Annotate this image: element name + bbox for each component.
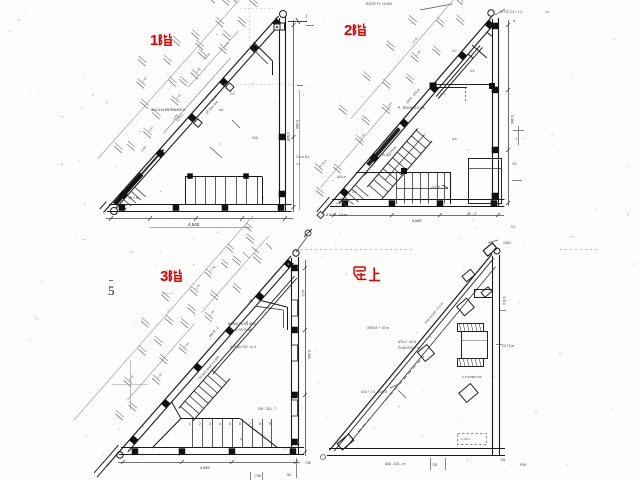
- svg-text:9: 9: [269, 422, 271, 426]
- svg-text:4,561: 4,561: [503, 241, 511, 245]
- svg-text:- 1: - 1: [129, 250, 133, 254]
- svg-text:W=1.0 m ENTRANCE K.: W=1.0 m ENTRANCE K.: [151, 108, 186, 112]
- svg-text:2.0: 2.0: [230, 92, 235, 96]
- svg-text:5: 5: [229, 422, 231, 426]
- svg-text:A 5.74 - 0.4 m: A 5.74 - 0.4 m: [326, 213, 347, 217]
- svg-text:4.5: 4.5: [470, 69, 475, 73]
- svg-text:6.0: 6.0: [452, 49, 457, 53]
- svg-text:745: 745: [305, 461, 311, 465]
- svg-text:d: d: [246, 320, 248, 324]
- svg-text:PLAN ROOF m: PLAN ROOF m: [398, 346, 420, 350]
- svg-text:C-TOWER 739: C-TOWER 739: [462, 375, 482, 379]
- svg-text:3.6: 3.6: [352, 190, 357, 194]
- svg-text:8: 8: [259, 422, 261, 426]
- svg-text:A4-1: A4-1: [301, 290, 305, 297]
- svg-text:W 0 2: W 0 2: [382, 153, 391, 157]
- svg-text:3.5: 3.5: [512, 162, 517, 166]
- svg-text:P - ROOM 2.4 + A: P - ROOM 2.4 + A: [398, 106, 425, 110]
- svg-text:d + e - s: d + e - s: [162, 291, 173, 295]
- svg-text:5,460: 5,460: [295, 120, 299, 129]
- svg-text:A23 + 771 - 100 B: A23 + 771 - 100 B: [361, 390, 387, 394]
- svg-text:38.2 m: 38.2 m: [128, 196, 139, 200]
- svg-text:4: 4: [219, 422, 221, 426]
- svg-text:m2: m2: [545, 10, 549, 14]
- svg-text:7: 7: [249, 422, 251, 426]
- svg-text:743: 743: [432, 463, 438, 467]
- svg-text:748: 748: [500, 458, 506, 462]
- svg-text:5,460: 5,460: [510, 115, 514, 124]
- svg-text:4,545: 4,545: [200, 466, 210, 470]
- svg-text:200 - 310 - 7: 200 - 310 - 7: [258, 407, 276, 411]
- svg-text:10.6: 10.6: [252, 136, 258, 140]
- svg-text:4.5: 4.5: [296, 162, 301, 166]
- svg-text:5,460: 5,460: [307, 350, 311, 359]
- svg-text:m: m: [240, 437, 243, 441]
- svg-text:745: 745: [255, 474, 261, 478]
- svg-text:a-100-b: a-100-b: [461, 437, 471, 441]
- svg-text:BL-A 702 PLAN: BL-A 702 PLAN: [230, 328, 253, 332]
- svg-text:MEMO-PLAN 4F d: MEMO-PLAN 4F d: [228, 322, 256, 326]
- svg-text:- 4.2 m -: - 4.2 m -: [430, 185, 442, 189]
- svg-text:2F - 2: 2F - 2: [467, 212, 476, 216]
- svg-text:c - d: c - d: [440, 92, 446, 96]
- svg-text:4F63 B + 10 m: 4F63 B + 10 m: [367, 326, 389, 330]
- svg-text:A-PLAN 702 - m d: A-PLAN 702 - m d: [230, 345, 256, 349]
- svg-text:A01 m: A01 m: [337, 175, 347, 179]
- svg-text:3: 3: [209, 422, 211, 426]
- svg-text:3-6 m B.L: 3-6 m B.L: [296, 155, 310, 159]
- svg-text:1: 1: [189, 422, 191, 426]
- svg-text:4,545: 4,545: [188, 222, 200, 227]
- svg-text:2: 2: [344, 22, 352, 39]
- svg-text:A03 - 103 - m: A03 - 103 - m: [385, 462, 405, 466]
- svg-text:23.71 m: 23.71 m: [502, 344, 514, 348]
- svg-text:90: 90: [287, 473, 291, 477]
- svg-text:2: 2: [199, 422, 201, 426]
- svg-text:a b: a b: [452, 137, 457, 141]
- svg-text:STAIR: STAIR: [286, 132, 290, 142]
- svg-text:5: 5: [108, 283, 115, 298]
- svg-text:ATA 4 - 40 A: ATA 4 - 40 A: [398, 340, 417, 344]
- svg-text:4,545: 4,545: [412, 219, 422, 223]
- svg-text:ATTIC 2.4 + 1.2: ATTIC 2.4 + 1.2: [500, 10, 523, 14]
- svg-text:3.78 A: 3.78 A: [502, 296, 506, 306]
- svg-text:6: 6: [239, 422, 241, 426]
- svg-text:P49: P49: [520, 463, 526, 467]
- svg-text:5.2: 5.2: [511, 225, 516, 229]
- svg-text:1: 1: [150, 32, 158, 49]
- svg-text:ROOF FL +3,400: ROOF FL +3,400: [366, 2, 392, 6]
- svg-text:45: 45: [249, 299, 253, 303]
